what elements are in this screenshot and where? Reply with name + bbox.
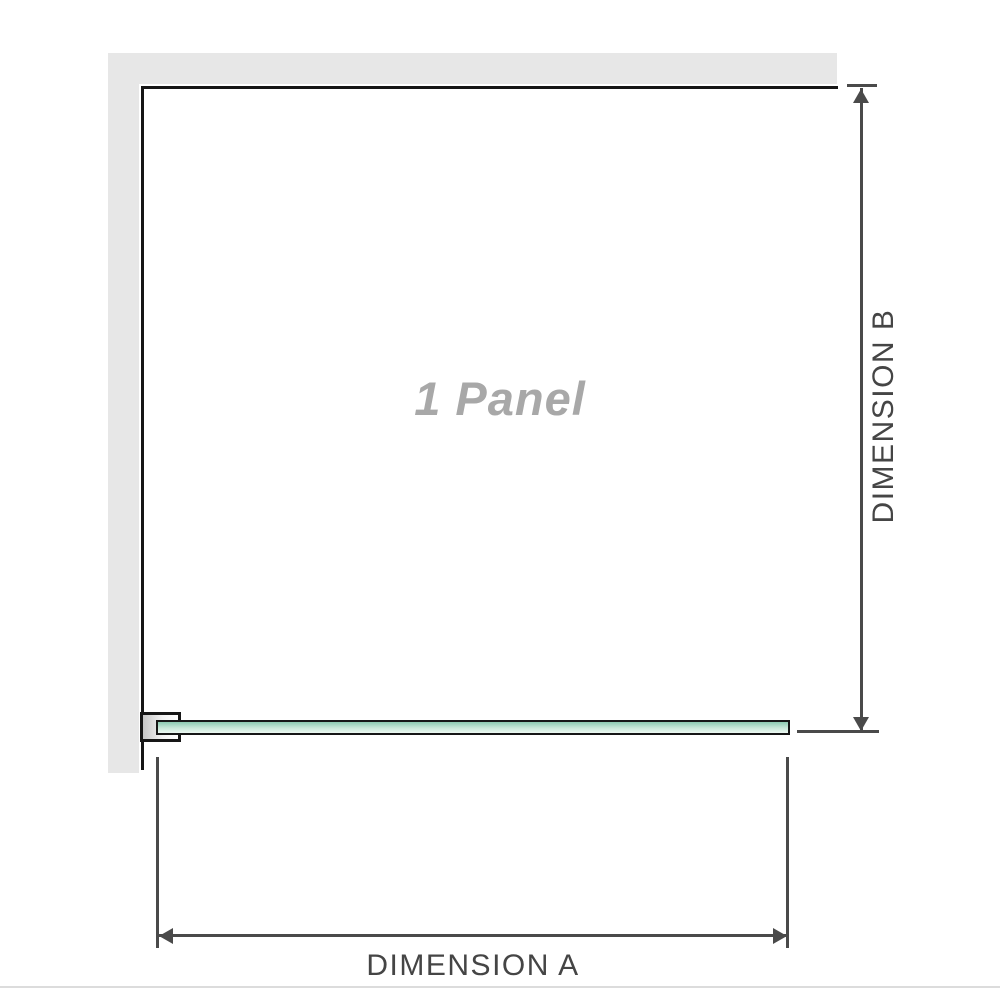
wall-top	[108, 53, 837, 84]
arrowhead-down-icon	[853, 717, 869, 731]
floor-line	[0, 986, 1000, 988]
arrowhead-up-icon	[853, 89, 869, 103]
wall-left-edge-line	[141, 86, 144, 770]
glass-panel	[156, 720, 790, 735]
dimension-b-top-tick	[847, 84, 877, 87]
dimension-a-line	[159, 934, 787, 937]
dimension-a-right-extension-line	[786, 757, 789, 948]
dimension-b-label: DIMENSION B	[866, 216, 902, 616]
dimension-b-line	[860, 88, 863, 731]
shower-panel-diagram: 1 Panel DIMENSION B DIMENSION A	[0, 0, 1000, 1000]
dimension-a-left-extension-line	[156, 757, 159, 948]
wall-top-edge-line	[141, 86, 838, 89]
wall-left	[108, 53, 139, 773]
panel-count-label: 1 Panel	[300, 370, 700, 426]
arrowhead-right-icon	[773, 928, 787, 944]
arrowhead-left-icon	[159, 928, 173, 944]
dimension-a-label: DIMENSION A	[273, 948, 673, 984]
